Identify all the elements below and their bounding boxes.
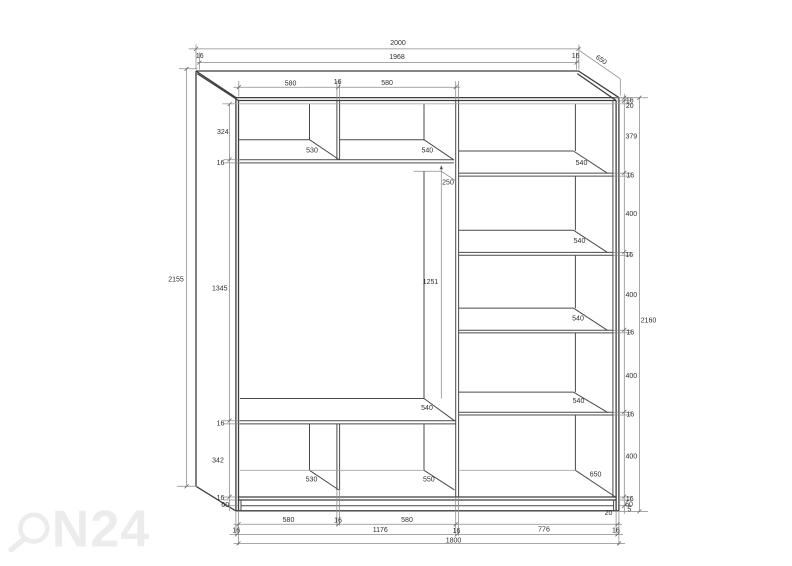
- svg-text:1968: 1968: [389, 54, 405, 61]
- svg-text:1176: 1176: [373, 527, 388, 534]
- svg-text:540: 540: [573, 398, 585, 405]
- svg-text:16: 16: [626, 330, 634, 337]
- svg-text:2160: 2160: [641, 318, 657, 325]
- svg-text:580: 580: [381, 80, 393, 87]
- svg-text:16: 16: [334, 79, 342, 86]
- svg-text:550: 550: [423, 476, 435, 483]
- svg-text:400: 400: [625, 454, 637, 461]
- svg-text:580: 580: [401, 517, 413, 524]
- svg-text:16: 16: [612, 528, 620, 535]
- svg-text:400: 400: [625, 292, 637, 299]
- svg-text:2000: 2000: [390, 40, 406, 47]
- svg-text:20: 20: [605, 510, 613, 517]
- svg-text:1345: 1345: [212, 285, 228, 292]
- svg-text:16: 16: [625, 252, 633, 259]
- svg-text:16: 16: [572, 53, 580, 60]
- svg-text:N24: N24: [52, 500, 150, 558]
- svg-text:580: 580: [285, 81, 297, 88]
- svg-text:16: 16: [626, 172, 634, 179]
- svg-text:1800: 1800: [446, 537, 462, 544]
- svg-text:530: 530: [306, 476, 318, 483]
- svg-text:342: 342: [212, 457, 224, 464]
- svg-text:20: 20: [626, 103, 634, 110]
- svg-text:650: 650: [590, 472, 602, 479]
- svg-text:60: 60: [221, 502, 229, 509]
- svg-text:400: 400: [625, 211, 637, 218]
- svg-text:776: 776: [538, 527, 550, 534]
- svg-text:250: 250: [442, 179, 454, 186]
- svg-text:540: 540: [421, 405, 433, 412]
- svg-text:540: 540: [572, 316, 584, 323]
- svg-text:530: 530: [306, 147, 318, 154]
- svg-text:540: 540: [421, 147, 433, 154]
- svg-text:540: 540: [576, 160, 588, 167]
- svg-text:16: 16: [334, 518, 342, 525]
- svg-text:1251: 1251: [423, 279, 439, 286]
- svg-text:379: 379: [625, 133, 637, 140]
- svg-text:16: 16: [217, 495, 225, 502]
- svg-text:540: 540: [574, 238, 586, 245]
- svg-text:324: 324: [217, 129, 229, 136]
- svg-text:16: 16: [196, 53, 204, 60]
- svg-text:16: 16: [232, 528, 240, 535]
- svg-text:16: 16: [626, 412, 634, 419]
- svg-text:5: 5: [627, 507, 631, 514]
- svg-text:16: 16: [217, 420, 225, 427]
- svg-text:2155: 2155: [168, 277, 184, 284]
- svg-text:16: 16: [217, 160, 225, 167]
- svg-text:16: 16: [453, 528, 461, 535]
- svg-text:400: 400: [625, 373, 637, 380]
- svg-text:580: 580: [283, 517, 295, 524]
